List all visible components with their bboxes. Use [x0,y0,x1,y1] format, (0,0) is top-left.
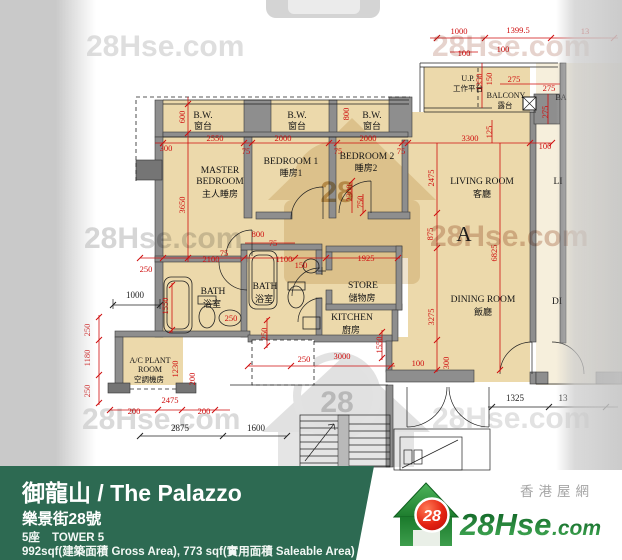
room-label: B.W. [193,111,212,121]
area-label: 992sqf(建築面積 Gross Area), 773 sqf(實用面積 Sa… [22,544,355,558]
dimension-label: 200 [187,373,197,386]
room-label: 工作平台 [453,83,483,93]
dimension-label: 3650 [177,197,187,214]
floorplan-page: 10001399.5131001001350150275275275125300… [0,0,622,560]
room-label: B.W. [362,111,381,121]
watermark-text: 28 [320,176,353,209]
dimension-label: 275 [540,106,550,119]
logo-badge-number: 28 [422,508,441,525]
room-label: MASTER [201,166,240,176]
tower-label-zh: 5座 [22,530,40,544]
dimension-label: 800 [341,108,351,121]
dimension-label: 150 [295,260,308,270]
dimension-label: 1550 [374,337,384,354]
dimension-label: 3275 [426,309,436,326]
dimension-label: 100 [539,141,552,151]
dimension-label: 1550 [160,298,170,315]
room-label: 廚房 [342,324,360,335]
dimension-label: 2550 [207,133,224,143]
room-label: 主人睡房 [202,188,238,199]
dimension-label: 75 [269,238,278,248]
dimension-label: 2475 [426,170,436,187]
logo-site-name: 28Hse [459,507,551,542]
room-label: BEDROOM [196,177,244,187]
room-label: 窗台 [194,120,212,131]
room-label: BATH [253,282,278,292]
dimension-label: 275 [543,83,556,93]
dimension-label: 300 [160,143,173,153]
dimension-label-black: 1000 [126,290,145,300]
room-label: A/C PLANT [129,356,170,365]
room-label: 飯廳 [474,306,492,317]
dimension-label: 300 [441,357,451,370]
room-label: 窗台 [363,120,381,131]
left-gray-overlay [0,0,96,466]
tower-label-en: TOWER 5 [52,532,105,544]
dimension-label: 2000 [275,133,292,143]
room-label: BALCONY [487,91,526,100]
room-label: LIVING ROOM [450,177,514,187]
dimension-label: 1100 [276,254,293,264]
watermark-text: 28Hse.com [86,30,244,63]
estate-address: 樂景街28號 [22,509,102,528]
room-label: DINING ROOM [451,295,516,305]
dimension-label: 3000 [334,351,351,361]
room-label: B.W. [287,111,306,121]
room-label: BEDROOM 1 [264,157,319,167]
dimension-label: 100 [412,358,425,368]
dimension-label: 3300 [462,133,479,143]
room-label: 睡房1 [280,167,303,178]
footer-bar: 御龍山 / The Palazzo 樂景街28號 5座 TOWER 5 992s… [0,466,374,560]
room-label: 浴室 [255,293,273,304]
room-label: 空調機房 [134,374,164,384]
dimension-label: 2100 [203,254,220,264]
dimension-label: 250 [259,328,269,341]
room-label: 儲物房 [348,292,375,303]
watermark-text: 28Hse.com [82,403,240,436]
room-label: ROOM [138,365,162,374]
floorplan-image: 10001399.5131001001350150275275275125300… [0,0,622,560]
room-label: KITCHEN [331,313,373,323]
dimension-label: 2000 [360,133,377,143]
dimension-label: 250 [298,354,311,364]
dimension-label-black: 1600 [247,423,266,433]
room-label: BEDROOM 2 [340,152,395,162]
room-label: 客廳 [473,188,491,199]
room-label: BATH [201,287,226,297]
logo-site-tld: .com [552,517,601,540]
dimension-label: 125 [484,126,494,139]
room-label: U.P. [461,74,474,83]
room-label: STORE [348,281,378,291]
watermark-text: 28Hse.com [84,222,242,255]
dimension-label: 75 [397,146,406,156]
dimension-label: 150 [484,73,494,86]
dimension-label: 750 [355,196,365,209]
dimension-label: 1925 [358,253,375,263]
dimension-label: 600 [177,111,187,124]
dimension-label: 275 [508,74,521,84]
dimension-label: 250 [140,264,153,274]
dimension-label: 1230 [170,361,180,378]
right-gray-overlay [556,0,622,470]
watermark-text: 28 [320,386,353,419]
logo-tagline: 香港屋網 [520,484,594,499]
estate-title: 御龍山 / The Palazzo [21,480,242,506]
room-label: 睡房2 [355,162,378,173]
dimension-label: 75 [242,146,251,156]
dimension-label: 800 [252,229,265,239]
room-label: 浴室 [203,298,221,309]
room-label: 露台 [498,100,513,110]
dimension-label: 250 [225,313,238,323]
room-label: 窗台 [288,120,306,131]
